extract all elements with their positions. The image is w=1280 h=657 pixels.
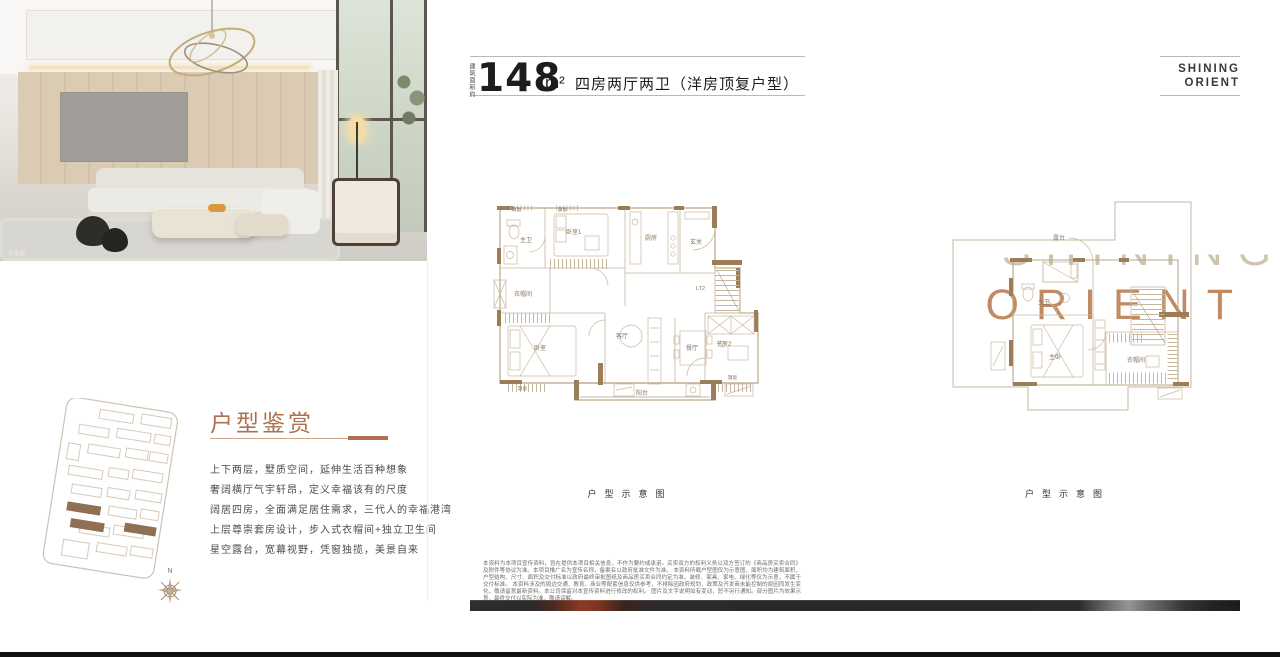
section-title: 户型鉴赏 [210,404,314,438]
room-label: 衣帽间 [514,290,532,298]
brand-line1: SHINING [1178,62,1240,76]
brand-logo: SHINING ORIENT [1178,62,1240,90]
coffee-table-small [236,214,288,236]
room-label: 露台 [1053,234,1065,242]
room-label: 阳台 [636,389,648,397]
room-label: 主卫 [1038,298,1050,306]
site-boundary [42,398,179,580]
armchair [332,178,400,246]
floorplan-lower: 飘窗 飘窗 主卫 卧室1 厨房 玄关 衣帽间 卧室 客厅 餐厅 书房2 LT2 … [490,198,770,405]
furniture [504,212,753,396]
room-label: 玄关 [690,238,702,246]
unit-type-title: 四房两厅两卫（洋房顶复户型） [575,73,799,94]
wall-fills [1009,258,1189,386]
room-label: 卧室 [534,344,546,352]
floorplan-lower-caption: 户型示意图 [490,487,770,500]
room-label: 飘窗 [512,206,521,213]
room-label: 主卫 [520,236,532,244]
highlighted-building [66,501,101,515]
panel-divider [427,261,428,601]
room-label: 书房2 [716,340,732,348]
doors [1043,238,1106,350]
plant [394,58,427,138]
photo-caption: 效果图 [8,250,26,257]
chandelier [150,0,280,110]
inner-walls [1013,260,1178,385]
suite-walls [1013,260,1178,385]
room-label: 衣帽间 [1127,356,1145,364]
brand-rule-top [1160,56,1240,57]
doors [529,228,715,376]
description-line: 上下两层，墅质空间，延伸生活百种想象 [210,461,440,476]
terrace-outline [953,202,1191,410]
fruit-bowl [208,204,226,212]
floorplan-upper-caption: 户型示意图 [945,487,1190,500]
brochure-page: 效果图 SHINING ORIENT [0,0,1280,657]
room-label: 客厅 [616,332,628,340]
room-label: 餐厅 [686,344,698,352]
legal-disclaimer: 本资料为本项目宣传资料，旨在提供本项目相关信息，不作为要约或承诺。买卖双方的权利… [483,561,801,603]
area-prefix-label: 建筑面积约 [468,63,476,98]
outer-walls [500,208,758,400]
stairs [717,270,739,311]
area-unit: m² [545,73,565,93]
section-rule-accent [348,436,388,440]
wall-fills [497,206,758,400]
room-label: 飘窗 [518,385,527,392]
description-line: 奢阔横厅气宇轩昂，定义幸福该有的尺度 [210,481,440,496]
description-line: 星空露台，宽幕视野，凭窗独揽，美景自来 [210,541,440,556]
side-table [102,228,128,252]
floorplan-upper: 露台 主卫 主卧 衣帽间 [943,192,1253,422]
page-bottom-edge [0,652,1280,657]
brand-line2: ORIENT [1178,76,1240,90]
interior-photo: 效果图 [0,0,427,261]
room-label: 主卧 [1049,353,1061,361]
description-line: 上层尊崇套房设计，步入式衣帽间+独立卫生间 [210,521,440,536]
compass-north-label: N [160,568,180,575]
room-label: 卧室1 [566,228,582,236]
room-label: 厨房 [645,234,657,242]
site-plan [26,398,196,583]
footer-gradient-bar [470,600,1240,611]
highlighted-building [70,518,105,532]
compass-icon [156,577,184,605]
brand-rule-bottom [1160,95,1240,96]
description-line: 阔居四房，全面满足居住需求，三代人的幸福港湾 [210,501,440,516]
highlighted-building [124,523,157,537]
room-label: 飘窗 [558,206,567,213]
room-label: LT2 [696,286,705,292]
room-label: 飘窗 [728,374,737,381]
